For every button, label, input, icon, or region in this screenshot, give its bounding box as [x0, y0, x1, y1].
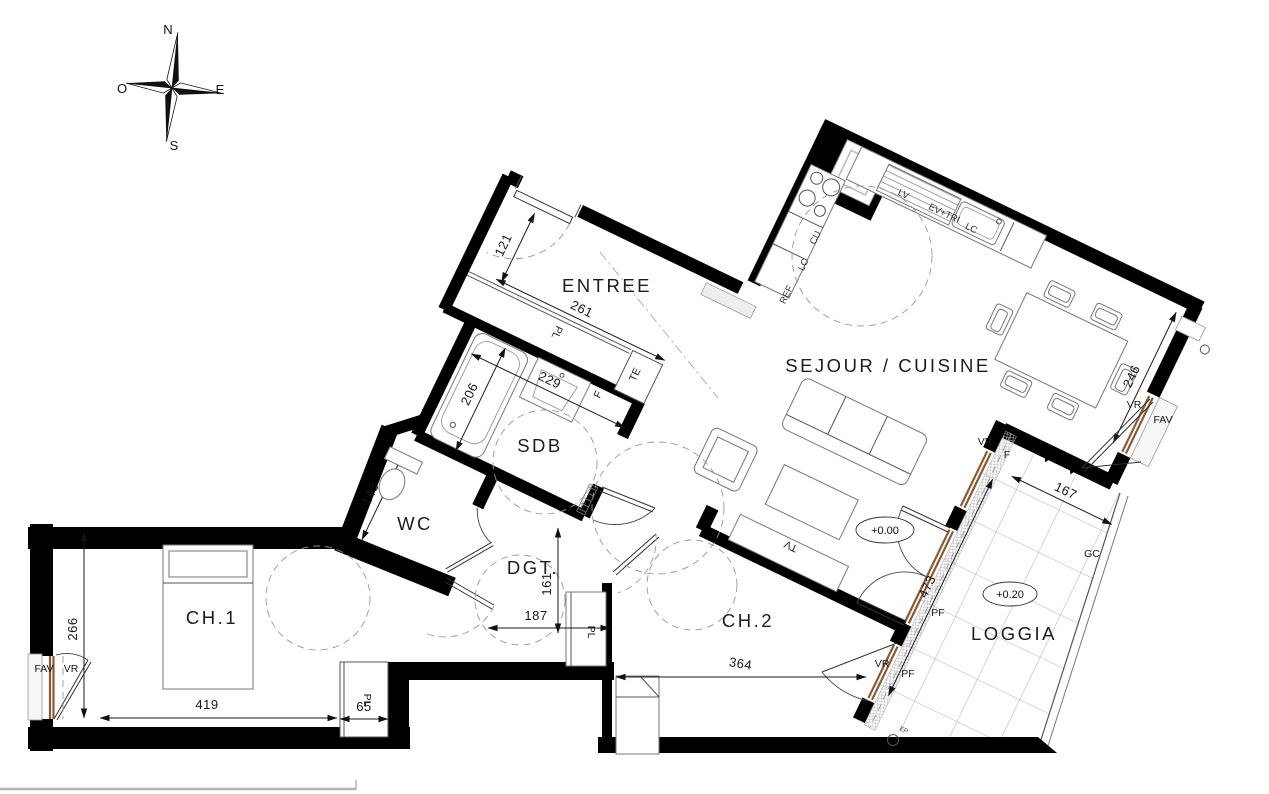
label-pf-ch2: PF: [901, 668, 914, 680]
label-vr-ch1: VR: [64, 663, 79, 675]
room-label-sejour: SEJOUR / CUISINE: [785, 355, 991, 376]
room-label-sdb: SDB: [517, 435, 563, 456]
title-block-edge: [0, 780, 356, 790]
ch2-bed: [616, 676, 659, 754]
drainpipe-icon: [1199, 343, 1211, 355]
level-main: +0.00: [871, 525, 899, 537]
compass-east: E: [216, 82, 225, 97]
label-gc: GC: [1084, 548, 1100, 560]
sofa: [780, 377, 929, 487]
room-label-loggia: LOGGIA: [971, 623, 1057, 644]
armchair: [692, 426, 759, 493]
compass-west: O: [117, 81, 127, 96]
level-loggia: +0.20: [996, 589, 1024, 601]
compass-north: N: [163, 22, 172, 37]
furniture-orthogonal: [163, 447, 659, 754]
room-label-dgt: DGT.: [507, 557, 559, 578]
dim-dgt-width: 187: [524, 608, 547, 623]
label-vr-sejour: VR: [978, 436, 993, 448]
compass-south: S: [170, 138, 179, 153]
label-pl-ch1: PL: [361, 694, 373, 707]
dim-ch1-width: 419: [195, 697, 218, 712]
label-pl-entree: PL: [548, 324, 564, 341]
coffee-table: [765, 465, 858, 540]
dim-entree-length: 261: [568, 297, 595, 321]
dim-entree-width: 121: [491, 231, 515, 258]
label-vr-dining: VR: [1127, 399, 1142, 411]
bathtub: [428, 330, 531, 460]
floor-plan-canvas: 121 261 206 229 143 167 473 246: [0, 0, 1269, 794]
label-fav-dining: FAV: [1153, 414, 1172, 426]
floor-plan-page: 121 261 206 229 143 167 473 246: [0, 0, 1269, 794]
label-f-sdb: F: [591, 389, 605, 400]
label-fav-ch1: FAV: [34, 663, 53, 675]
dim-ch2-width: 364: [728, 654, 753, 672]
room-label-entree: ENTREE: [562, 275, 652, 296]
room-label-ch2: CH.2: [722, 610, 774, 631]
compass-rose: N S O E: [117, 22, 228, 153]
room-label-wc: WC: [397, 513, 433, 534]
label-vr-ch2: VR: [875, 658, 890, 670]
dim-ch1-depth: 266: [65, 617, 80, 640]
room-label-ch1: CH.1: [186, 607, 238, 628]
wc-door: [445, 507, 506, 585]
label-f-sejour: F: [1004, 449, 1010, 461]
label-pf-sejour: PF: [931, 607, 944, 619]
label-pl-dgt: PL: [585, 626, 597, 639]
